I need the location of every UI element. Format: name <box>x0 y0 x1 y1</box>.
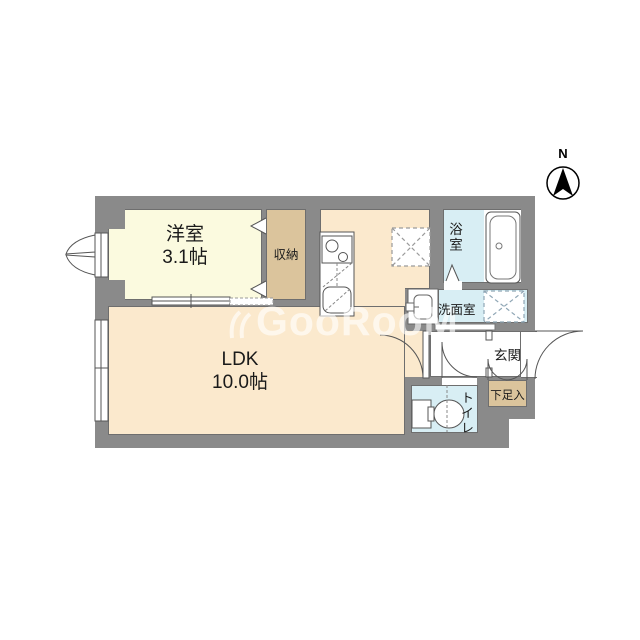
shoe-cabinet-label: 下足入 <box>488 387 527 403</box>
washroom-label: 洗面室 <box>438 299 476 318</box>
bathtub-icon <box>486 212 520 283</box>
bath-folding-door-icon <box>444 265 462 290</box>
ldk-window-icon <box>95 320 108 421</box>
watermark: GooRooM <box>228 298 459 345</box>
washing-machine-space-icon <box>484 291 524 322</box>
watermark-text: GooRooM <box>256 298 459 345</box>
western-room-name: 洋室 <box>110 223 260 246</box>
ldk-size: 10.0帖 <box>120 371 360 394</box>
ldk-label: LDK 10.0帖 <box>120 348 360 394</box>
floor-plan: GooRooM 洋室 3.1帖 収納 LDK 10.0帖 浴室 洗面室 玄関 下… <box>0 0 640 640</box>
front-door-icon <box>535 331 583 379</box>
stove-burner-icon <box>339 253 348 262</box>
western-room-label: 洋室 3.1帖 <box>110 223 260 269</box>
western-room-size: 3.1帖 <box>110 246 260 269</box>
compass-north-label: N <box>548 146 578 161</box>
casement-window-icon <box>66 233 108 277</box>
refrigerator-space-icon <box>392 228 430 266</box>
bathroom-label: 浴室 <box>444 222 464 253</box>
watermark-icon <box>228 308 254 342</box>
toilet-door-icon <box>442 342 477 385</box>
entrance-label: 玄関 <box>494 344 521 364</box>
closet-label: 収納 <box>264 244 308 263</box>
sliding-door-icon <box>152 294 230 308</box>
compass-icon <box>547 167 579 199</box>
stove-burner-icon <box>326 240 338 252</box>
ldk-name: LDK <box>120 348 360 371</box>
toilet-label: トイレ <box>457 391 476 436</box>
